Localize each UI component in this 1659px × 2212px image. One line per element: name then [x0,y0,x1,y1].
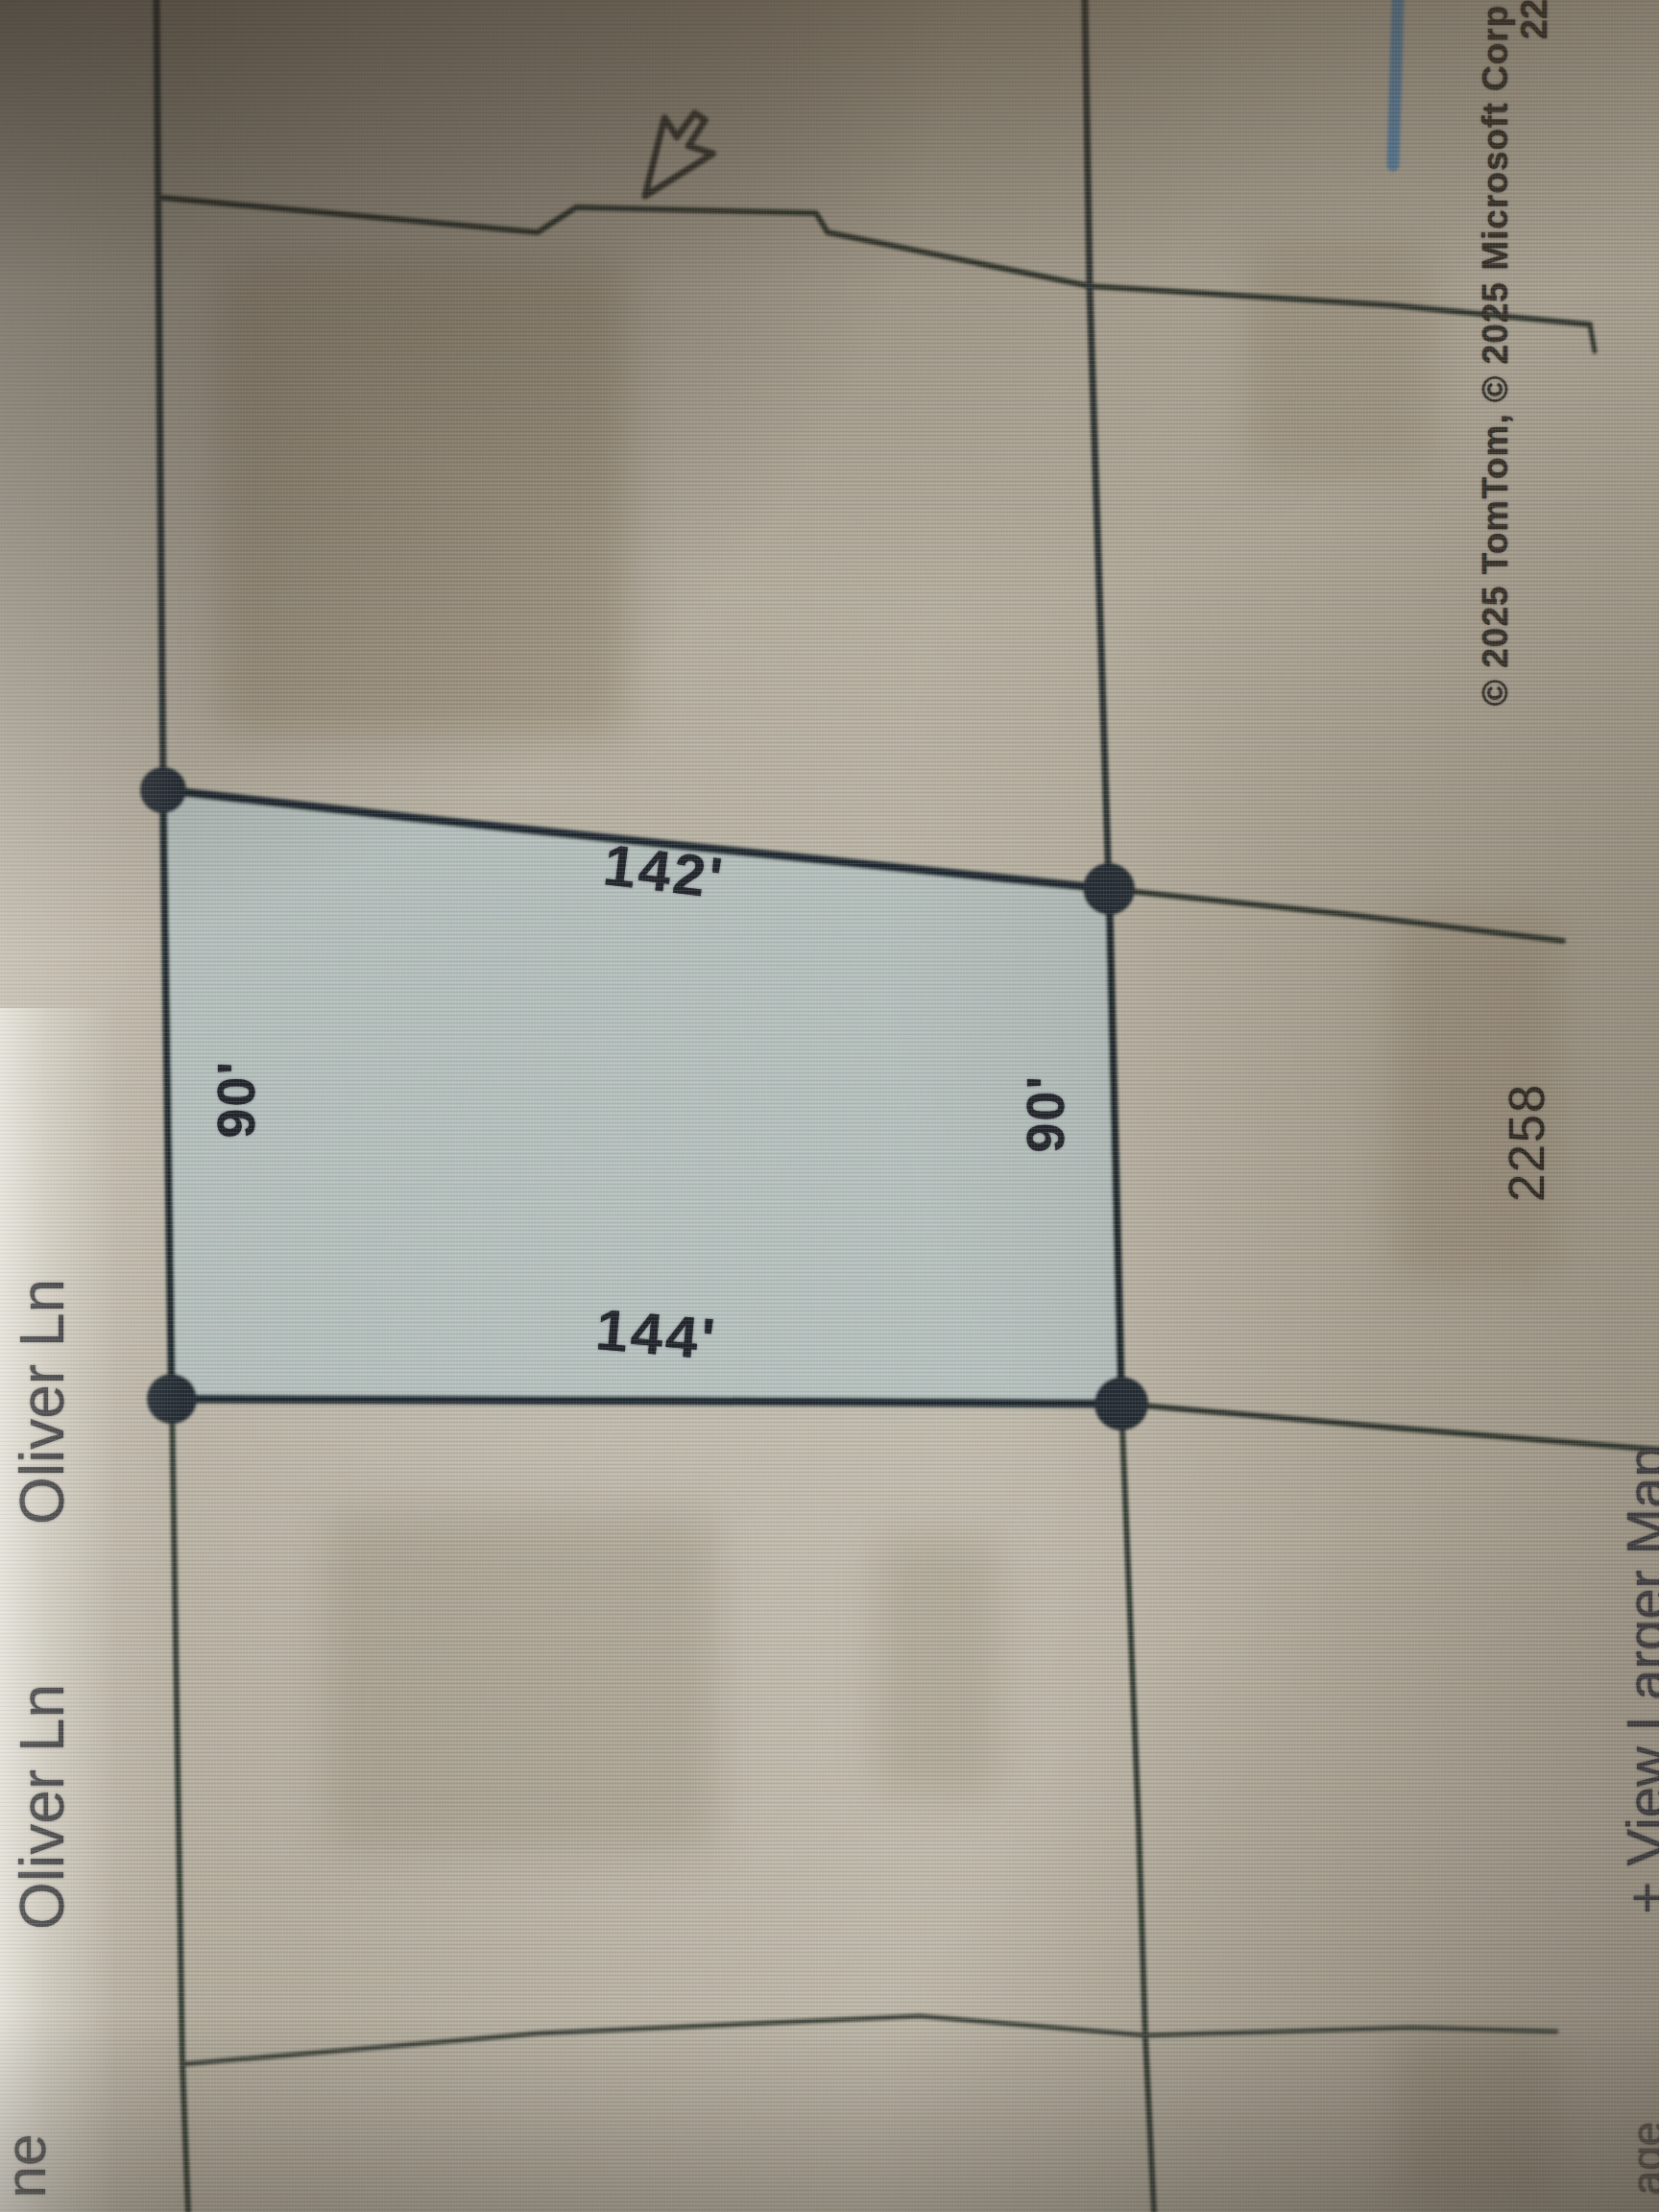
lot-line-tick [1590,325,1595,351]
parcel-dimension-left: 90' [204,1060,267,1139]
edge-text-fragment-bottom-right: age [1622,2122,1659,2196]
lot-line [182,2016,1556,2064]
lot-line [1109,889,1563,941]
parcel-edge-bottom [172,1399,1121,1404]
parcel-map-photo[interactable]: 142' 144' 90' 90' 2258 Oliver Ln Oliver … [0,0,1659,2212]
edge-text-fragment-bottom-left: ne [0,2134,59,2199]
lot-line [1121,1404,1659,1450]
lot-line [1121,1404,1154,2212]
blue-route-line [1393,0,1398,165]
lot-line [163,198,1090,286]
lot-line [156,0,163,790]
street-label-oliver-ln-1: Oliver Ln [7,1279,78,1525]
cursor-arrow-icon [615,100,722,196]
lot-line [172,1399,188,2212]
map-attribution: © 2025 TomTom, © 2025 Microsoft Corp [1476,5,1516,707]
adjacent-parcel-number: 2258 [1498,1083,1555,1202]
attribution-fragment: 22 [1514,0,1555,39]
parcel-corner-dot [140,767,186,813]
lot-line [1085,0,1109,889]
parcel-corner-dot [1083,863,1135,915]
parcel-corner-dot [147,1374,197,1424]
parcel-dimension-bottom: 144' [593,1296,720,1373]
street-label-oliver-ln-2: Oliver Ln [7,1684,78,1930]
parcel-corner-dot [1094,1377,1148,1431]
view-larger-map-link[interactable]: + View Larger Map [1614,1446,1659,1913]
parcel-dimension-right: 90' [1014,1074,1076,1153]
